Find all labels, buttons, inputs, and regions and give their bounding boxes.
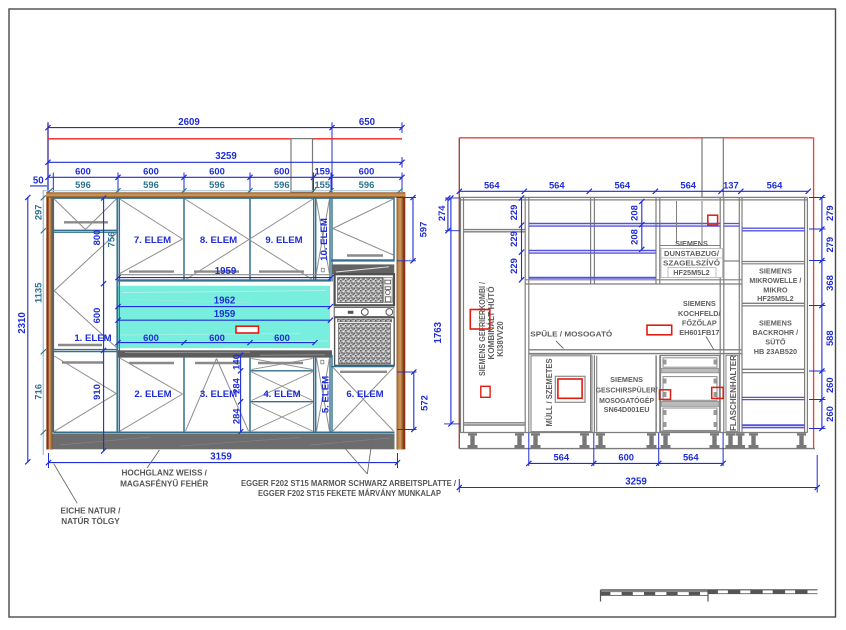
svg-text:274: 274 [436,205,447,221]
svg-text:SZAGELSZÍVÓ: SZAGELSZÍVÓ [663,259,720,268]
svg-text:EGGER F202 ST15 MARMOR SCHWARZ: EGGER F202 ST15 MARMOR SCHWARZ ARBEITSPL… [241,479,457,488]
svg-text:260: 260 [824,377,835,393]
svg-text:3259: 3259 [625,476,647,487]
svg-text:NATÚR TÖLGY: NATÚR TÖLGY [61,515,120,526]
svg-text:279: 279 [824,205,835,221]
svg-text:284: 284 [231,408,242,424]
svg-text:KOCHFELD/: KOCHFELD/ [678,309,721,318]
svg-text:8. ELEM: 8. ELEM [200,235,237,246]
svg-text:FLASCHENHALTER: FLASCHENHALTER [728,355,738,431]
svg-text:297: 297 [32,204,43,220]
svg-text:600: 600 [274,332,290,343]
svg-text:650: 650 [359,117,375,128]
svg-text:368: 368 [824,275,835,291]
svg-text:1763: 1763 [433,321,444,343]
svg-text:600: 600 [209,332,225,343]
svg-text:MÜLL / SZEMETES: MÜLL / SZEMETES [545,359,554,427]
svg-text:800: 800 [91,230,102,246]
svg-text:6. ELEM: 6. ELEM [346,389,383,400]
svg-text:159: 159 [314,166,330,177]
svg-text:600: 600 [75,166,91,177]
svg-text:50: 50 [33,176,44,187]
svg-text:9. ELEM: 9. ELEM [265,235,302,246]
svg-text:EICHE NATUR /: EICHE NATUR / [61,507,122,516]
svg-text:MIKROWELLE /: MIKROWELLE / [749,276,801,285]
svg-text:564: 564 [767,180,783,191]
svg-text:SIEMENS: SIEMENS [759,319,792,328]
svg-text:600: 600 [143,166,159,177]
svg-text:KOMBINÁLT HŰTŐ: KOMBINÁLT HŰTŐ [487,287,496,360]
svg-text:MOSOGATÓGÉP: MOSOGATÓGÉP [599,396,654,405]
svg-text:208: 208 [629,229,640,245]
svg-text:279: 279 [824,237,835,253]
svg-text:1. ELEM: 1. ELEM [74,333,111,344]
svg-text:600: 600 [143,332,159,343]
svg-text:HB 23AB520: HB 23AB520 [754,347,797,356]
svg-text:SIEMENS: SIEMENS [675,239,708,248]
svg-text:1959: 1959 [215,266,237,277]
svg-text:DUNSTABZUG/: DUNSTABZUG/ [664,249,719,258]
svg-text:564: 564 [683,452,699,463]
svg-text:10. ELEM: 10. ELEM [319,218,330,261]
svg-text:2310: 2310 [17,312,28,334]
svg-text:4. ELEM: 4. ELEM [263,389,300,400]
svg-text:SIEMENS: SIEMENS [610,375,643,384]
svg-text:229: 229 [508,258,519,274]
svg-text:HOCHGLANZ WEISS /: HOCHGLANZ WEISS / [121,469,207,478]
svg-text:716: 716 [32,384,43,400]
svg-text:FŐZŐLAP: FŐZŐLAP [682,319,717,328]
svg-text:5. ELEM: 5. ELEM [321,376,332,413]
svg-text:229: 229 [508,231,519,247]
svg-text:600: 600 [618,452,634,463]
svg-text:1959: 1959 [214,309,236,320]
svg-text:600: 600 [91,308,102,324]
svg-text:SÜTŐ: SÜTŐ [765,338,786,347]
svg-text:910: 910 [91,384,102,400]
svg-text:596: 596 [143,179,159,190]
svg-text:284: 284 [231,377,242,393]
svg-text:229: 229 [508,205,519,221]
svg-text:260: 260 [824,406,835,422]
svg-text:137: 137 [723,180,739,191]
svg-text:KI38VV20: KI38VV20 [496,321,505,357]
svg-text:SIEMENS: SIEMENS [683,299,716,308]
svg-text:600: 600 [209,166,225,177]
svg-text:572: 572 [419,395,430,411]
svg-text:7. ELEM: 7. ELEM [134,235,171,246]
svg-text:SN64D001EU: SN64D001EU [604,405,650,414]
svg-text:3259: 3259 [215,151,237,162]
svg-text:564: 564 [553,452,569,463]
svg-text:EGGER F202 ST15 FEKETE MÁRVÁNY: EGGER F202 ST15 FEKETE MÁRVÁNY MUNKALAP [258,488,441,498]
svg-text:1135: 1135 [32,283,43,303]
svg-text:GESCHIRSPÜLER/: GESCHIRSPÜLER/ [596,385,658,394]
svg-text:155: 155 [314,179,330,190]
svg-text:588: 588 [824,330,835,346]
svg-text:564: 564 [680,180,696,191]
svg-text:564: 564 [614,180,630,191]
svg-text:596: 596 [359,179,375,190]
svg-text:1962: 1962 [214,295,236,306]
svg-text:600: 600 [274,166,290,177]
svg-text:756: 756 [105,232,116,248]
svg-text:SIEMENS: SIEMENS [759,266,792,275]
svg-text:208: 208 [629,205,640,221]
svg-text:MAGASFÉNYŰ FEHÉR: MAGASFÉNYŰ FEHÉR [120,477,208,488]
svg-text:596: 596 [274,179,290,190]
svg-text:564: 564 [549,180,565,191]
svg-text:HF25M5L2: HF25M5L2 [673,268,710,277]
svg-text:2609: 2609 [178,117,200,128]
svg-text:3159: 3159 [210,452,232,463]
svg-text:2. ELEM: 2. ELEM [134,389,171,400]
svg-text:SPŰLE / MOSOGATÓ: SPŰLE / MOSOGATÓ [530,330,612,339]
svg-text:140: 140 [231,354,242,370]
svg-text:596: 596 [75,179,91,190]
svg-text:EH601FB17: EH601FB17 [679,328,719,337]
svg-text:596: 596 [209,179,225,190]
svg-text:564: 564 [484,180,500,191]
svg-text:BACKROHR /: BACKROHR / [753,328,799,337]
svg-text:600: 600 [359,166,375,177]
svg-text:597: 597 [418,222,429,238]
svg-text:HF25M5L2: HF25M5L2 [757,294,794,303]
